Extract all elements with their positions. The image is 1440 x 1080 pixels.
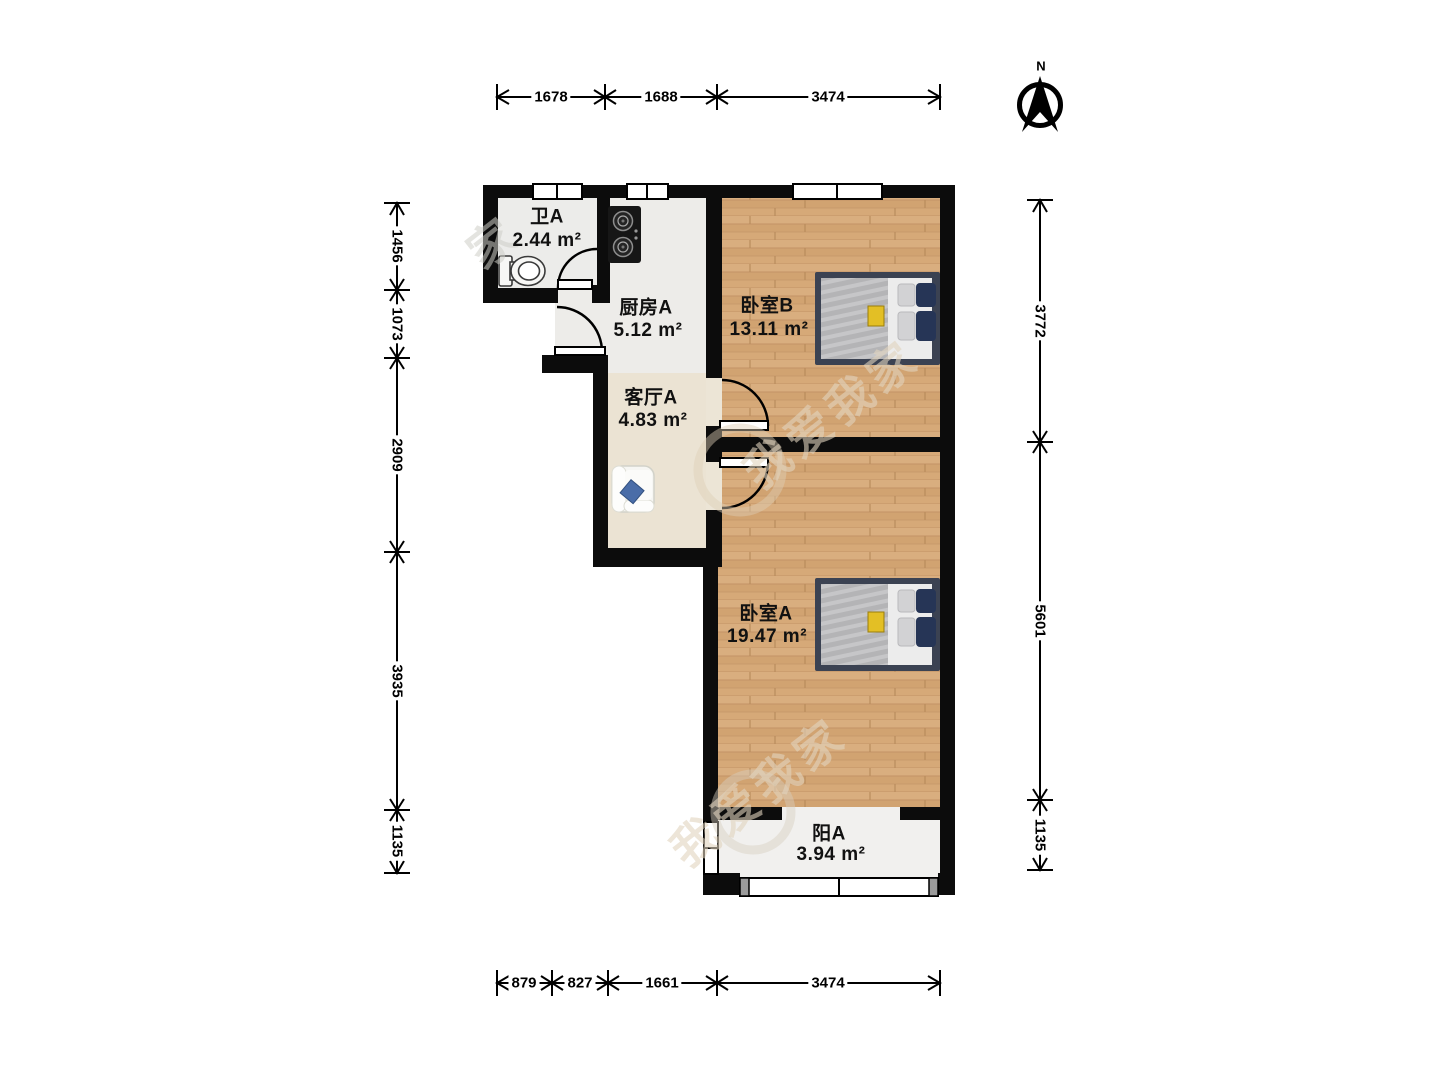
room-area-bedroom-a: 19.47 m² [727,626,807,648]
dim-label-left-1: 1456 [389,226,406,265]
wall-below-door-a [706,510,722,567]
room-name-balcony: 阳A [812,819,846,846]
sofa [612,466,654,512]
dim-label-left-5: 1135 [389,822,406,861]
wall-balcony-bottom-right [938,873,955,895]
wall-bathroom-left [483,185,498,303]
room-name-bathroom: 卫A [530,202,564,229]
compass-icon [1020,76,1061,132]
dim-label-top-2: 1688 [641,89,680,106]
threshold-bedroom-b [706,378,722,426]
wall-right [940,185,955,895]
bed-bedroom-a [815,578,940,671]
room-area-bedroom-b: 13.11 m² [730,319,809,341]
room-area-living: 4.83 m² [619,410,688,432]
wall-kitchen-bedroom-b [706,198,722,378]
dim-label-right-2: 5601 [1032,601,1049,640]
dim-label-left-2: 1073 [389,304,406,343]
room-name-kitchen: 厨房A [619,293,672,320]
dim-label-top-3: 3474 [808,89,847,106]
bed-bedroom-b [815,272,940,365]
compass-north-label: N [1036,59,1045,74]
dim-label-right-3: 1135 [1032,816,1049,855]
wall-living-left [593,355,608,567]
window-bedroom-b [793,184,882,199]
floorplan-drawing [0,0,1440,1080]
wall-balcony-bottom-left [703,873,740,895]
dim-label-bottom-1: 879 [508,975,539,992]
stove [608,206,641,263]
dimension-line-bottom [497,970,940,996]
wall-bedrooms-divider [706,437,940,452]
dim-label-top-1: 1678 [531,89,570,106]
dim-label-left-3: 2909 [389,435,406,474]
dim-label-right-1: 3772 [1032,301,1049,340]
window-kitchen [627,184,668,199]
room-name-bedroom-b: 卧室B [740,291,793,318]
wall-bedroom-a-left [703,567,718,823]
dim-label-bottom-3: 1661 [642,975,681,992]
dim-label-bottom-2: 827 [564,975,595,992]
room-area-balcony: 3.94 m² [797,844,866,866]
threshold-bathroom [558,288,592,303]
dim-label-bottom-4: 3474 [808,975,847,992]
window-balcony-front [740,878,938,896]
wall-balcony-top-left [717,807,782,820]
toilet [499,256,545,286]
room-area-bathroom: 2.44 m² [513,230,582,252]
wall-bathroom-bottom [483,288,558,303]
room-area-kitchen: 5.12 m² [614,320,683,342]
window-bathroom [533,184,582,199]
dim-label-left-4: 3935 [389,661,406,700]
wall-living-bottom [593,548,722,567]
room-name-living: 客厅A [624,383,677,410]
wall-balcony-top-right [900,807,940,820]
room-name-bedroom-a: 卧室A [739,599,792,626]
floorplan-page: 我爱我家 我爱我家 家 卫A 2.44 m² 厨房A 5.12 m² 客厅A 4… [0,0,1440,1080]
